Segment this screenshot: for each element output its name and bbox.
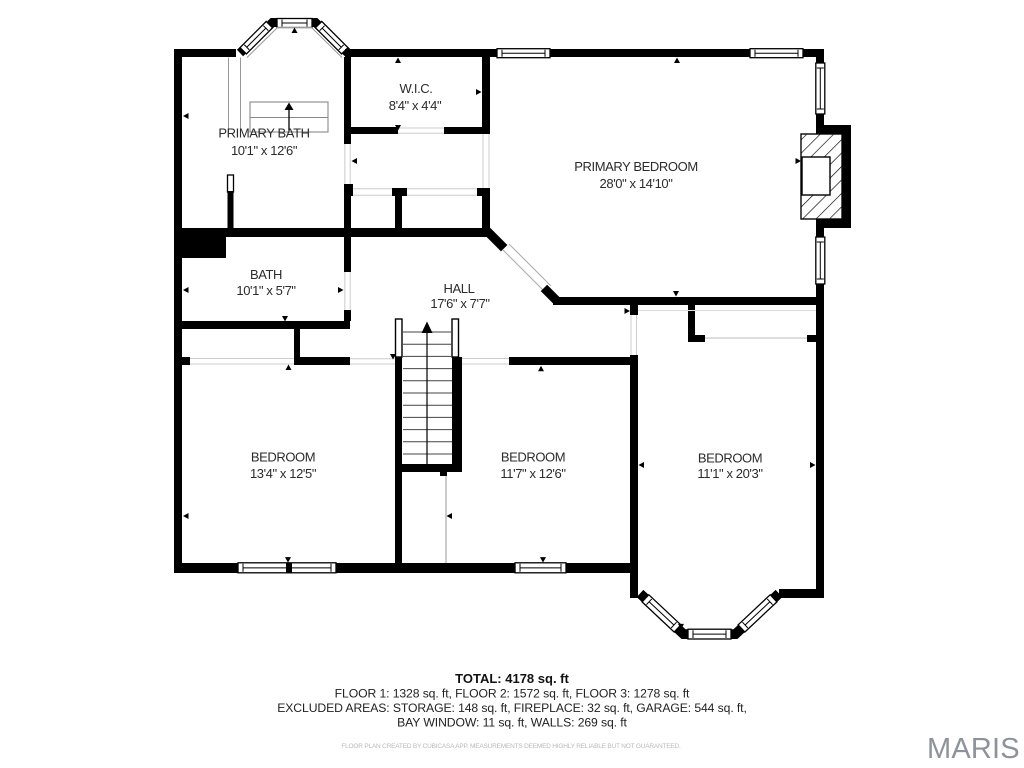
- svg-text:FLOOR PLAN CREATED BY CUBICASA: FLOOR PLAN CREATED BY CUBICASA APP. MEAS…: [341, 743, 681, 750]
- svg-text:BAY WINDOW: 11 sq. ft, WALLS:: BAY WINDOW: 11 sq. ft, WALLS: 269 sq. ft: [397, 716, 627, 730]
- svg-text:BATH: BATH: [250, 267, 282, 282]
- svg-text:PRIMARY BEDROOM: PRIMARY BEDROOM: [574, 159, 698, 174]
- svg-text:HALL: HALL: [444, 281, 475, 296]
- svg-text:FLOOR 1: 1328 sq. ft, FLOOR 2:: FLOOR 1: 1328 sq. ft, FLOOR 2: 1572 sq. …: [335, 687, 690, 701]
- svg-text:BEDROOM: BEDROOM: [698, 451, 762, 466]
- svg-text:28'0" x 14'10": 28'0" x 14'10": [600, 176, 674, 191]
- svg-text:13'4" x 12'5": 13'4" x 12'5": [250, 466, 317, 481]
- svg-text:PRIMARY BATH: PRIMARY BATH: [218, 126, 309, 141]
- svg-text:EXCLUDED AREAS: STORAGE: 148 s: EXCLUDED AREAS: STORAGE: 148 sq. ft, FIR…: [277, 701, 747, 715]
- svg-text:10'1" x 5'7": 10'1" x 5'7": [236, 283, 296, 298]
- svg-text:W.I.C.: W.I.C.: [400, 81, 433, 96]
- svg-text:11'1" x 20'3": 11'1" x 20'3": [697, 466, 763, 481]
- svg-text:MARIS: MARIS: [927, 733, 1020, 765]
- svg-text:11'7" x 12'6": 11'7" x 12'6": [500, 466, 566, 481]
- svg-text:BEDROOM: BEDROOM: [251, 450, 315, 465]
- svg-text:10'1" x 12'6": 10'1" x 12'6": [231, 143, 298, 158]
- svg-text:17'6" x 7'7": 17'6" x 7'7": [430, 296, 490, 311]
- svg-text:BEDROOM: BEDROOM: [501, 450, 565, 465]
- svg-text:8'4" x 4'4": 8'4" x 4'4": [389, 98, 442, 113]
- svg-text:TOTAL: 4178 sq. ft: TOTAL: 4178 sq. ft: [455, 671, 569, 686]
